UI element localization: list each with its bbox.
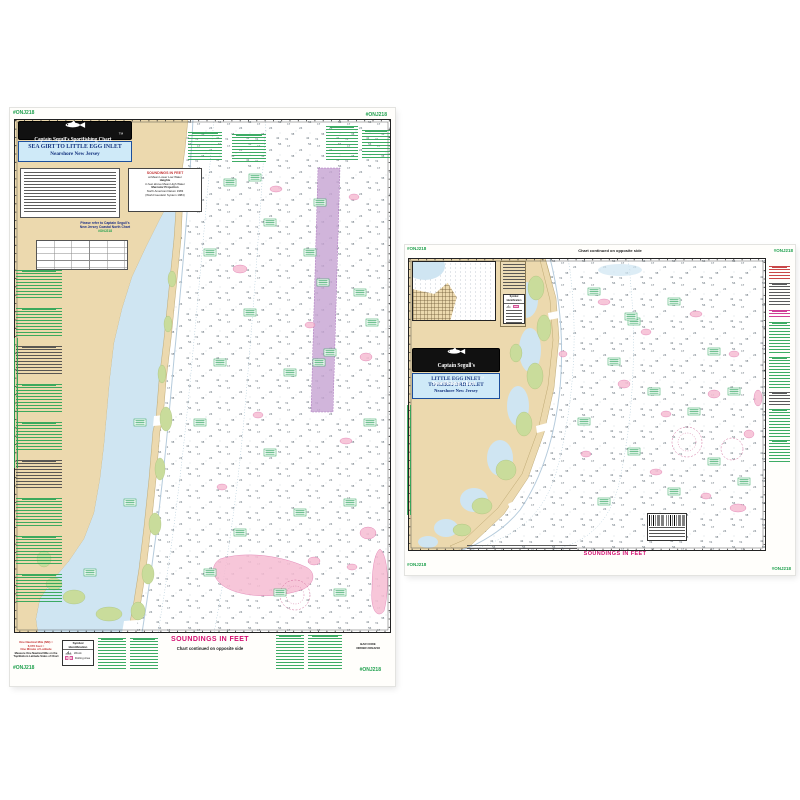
symbol-identification-box: Symbol Identification xyxy=(503,294,525,324)
brand-banner: Captain Segull's Sportfishing ChartTM xyxy=(18,121,132,140)
chart-code-bottom-left: #ONJ218 xyxy=(407,562,426,567)
chart-code-top-left: #ONJ218 xyxy=(407,246,426,251)
margin-note xyxy=(769,283,790,307)
symbol-box-heading: Symbol Identification xyxy=(504,295,524,304)
continued-label-top: Chart continued on opposite side xyxy=(530,248,690,253)
tide-table xyxy=(36,240,128,270)
left-chart-title-block: Captain Segull's Sportfishing ChartTM SE… xyxy=(18,121,132,162)
rotated-margin-note xyxy=(406,405,411,515)
brand-banner: Captain Segull's Sportfishing ChartTM xyxy=(412,348,500,372)
product-photo-canvas: { "product": { "left_chart": { "corner_c… xyxy=(0,0,800,800)
chart-code-bottom-left: #ONJ218 xyxy=(13,666,34,671)
inset-fine-print xyxy=(503,264,525,290)
margin-note-red xyxy=(769,266,790,280)
legend-fine-print xyxy=(506,310,522,324)
coordinate-list xyxy=(16,422,62,452)
right-chart-title-block: Captain Segull's Sportfishing ChartTM LI… xyxy=(412,348,500,399)
nm-line: Top/Bottom Latitude Sides of Chart xyxy=(13,655,59,658)
coordinate-list xyxy=(16,460,62,490)
coordinate-list xyxy=(16,308,62,338)
soundings-in-feet-label: SOUNDINGS IN FEET xyxy=(555,551,675,557)
coordinate-list xyxy=(188,132,222,162)
margin-note-magenta xyxy=(769,310,790,319)
wreck-symbol-icon xyxy=(506,305,511,308)
coordinate-list xyxy=(769,357,790,389)
barcode-note: BAR CODE ORDER #ONJ218 xyxy=(350,643,386,651)
coordinate-list xyxy=(769,322,790,354)
brand-line: Captain Segull's xyxy=(437,362,474,369)
coordinate-list xyxy=(232,134,266,162)
soundings-text: SOUNDINGS IN FEET xyxy=(148,636,272,643)
symbol-identification-box: Symbol Identification Wreck Fishing Area xyxy=(62,640,94,666)
refer-chart-code: #ONJ218 xyxy=(74,229,136,233)
coordinate-list xyxy=(308,635,342,671)
coordinate-list xyxy=(16,536,62,566)
margin-note xyxy=(769,392,790,406)
coordinate-list xyxy=(326,126,358,160)
fish-logo-icon xyxy=(445,348,469,355)
coordinate-list xyxy=(16,270,62,300)
coordinate-list xyxy=(98,638,126,670)
wreck-symbol-icon xyxy=(65,651,72,655)
right-chart-sheet: #ONJ218 #ONJ218 #ONJ218 #ONJ218 Chart co… xyxy=(405,245,795,575)
brand-line: Sportfishing Chart xyxy=(432,380,475,387)
right-margin-notes xyxy=(767,258,792,551)
symbol-label: Wreck xyxy=(74,652,82,655)
coordinate-list xyxy=(362,130,390,160)
coordinate-list xyxy=(16,384,62,414)
coordinate-list xyxy=(276,635,304,671)
coordinate-list xyxy=(769,440,790,464)
barcode-box xyxy=(647,513,687,541)
coordinate-list xyxy=(16,498,62,528)
barcode-line: ORDER #ONJ218 xyxy=(350,647,386,651)
brand-name: Captain Segull's Sportfishing Chart xyxy=(34,137,111,143)
chart-code-top-right: #ONJ218 xyxy=(774,248,793,253)
fish-logo-icon xyxy=(63,121,89,129)
continued-label: Chart continued on opposite side xyxy=(148,646,272,651)
left-chart-sheet: #ONJ218 #ONJ218 #ONJ218 #ONJ218 17 24 38… xyxy=(10,108,395,686)
soundings-in-feet-label: SOUNDINGS IN FEET Chart continued on opp… xyxy=(148,636,272,651)
bottom-fine-print xyxy=(467,545,577,549)
chart-code-top-right: #ONJ218 xyxy=(366,113,387,118)
rotated-margin-note xyxy=(13,338,18,468)
barcode-stripes xyxy=(649,515,685,526)
chart-code-top-left: #ONJ218 xyxy=(13,111,34,116)
symbol-box-heading: Symbol Identification xyxy=(63,641,93,650)
projection-note-box: SOUNDINGS IN FEET at Mean Lower Low Wate… xyxy=(128,168,202,212)
chart-code-bottom-right: #ONJ218 xyxy=(360,668,381,673)
coordinate-list xyxy=(16,574,62,604)
chart-code-bottom-right: #ONJ218 xyxy=(772,566,791,571)
trademark: TM xyxy=(119,132,123,136)
harbor-inset-map xyxy=(412,261,496,321)
inset-notes-panel: Symbol Identification xyxy=(500,261,526,327)
fishing-area-swatch xyxy=(513,305,519,308)
projection-line: (World Geodetic System 1984) xyxy=(129,194,201,198)
barcode-table xyxy=(649,527,685,539)
fishing-area-swatch xyxy=(65,656,73,660)
trademark: TM xyxy=(480,376,484,380)
chart-notes-box xyxy=(20,168,120,218)
nautical-mile-note: One Nautical Mile (NM) = 6,076 Feet = On… xyxy=(13,641,59,658)
notes-fine-print xyxy=(24,172,116,214)
symbol-label: Fishing Area xyxy=(75,657,90,660)
coordinate-list xyxy=(16,346,62,376)
refer-note: Please refer to Captain Segull's New Jer… xyxy=(74,221,136,233)
chart-subtitle: Nearshore New Jersey xyxy=(19,151,131,158)
coordinate-list xyxy=(769,409,790,437)
